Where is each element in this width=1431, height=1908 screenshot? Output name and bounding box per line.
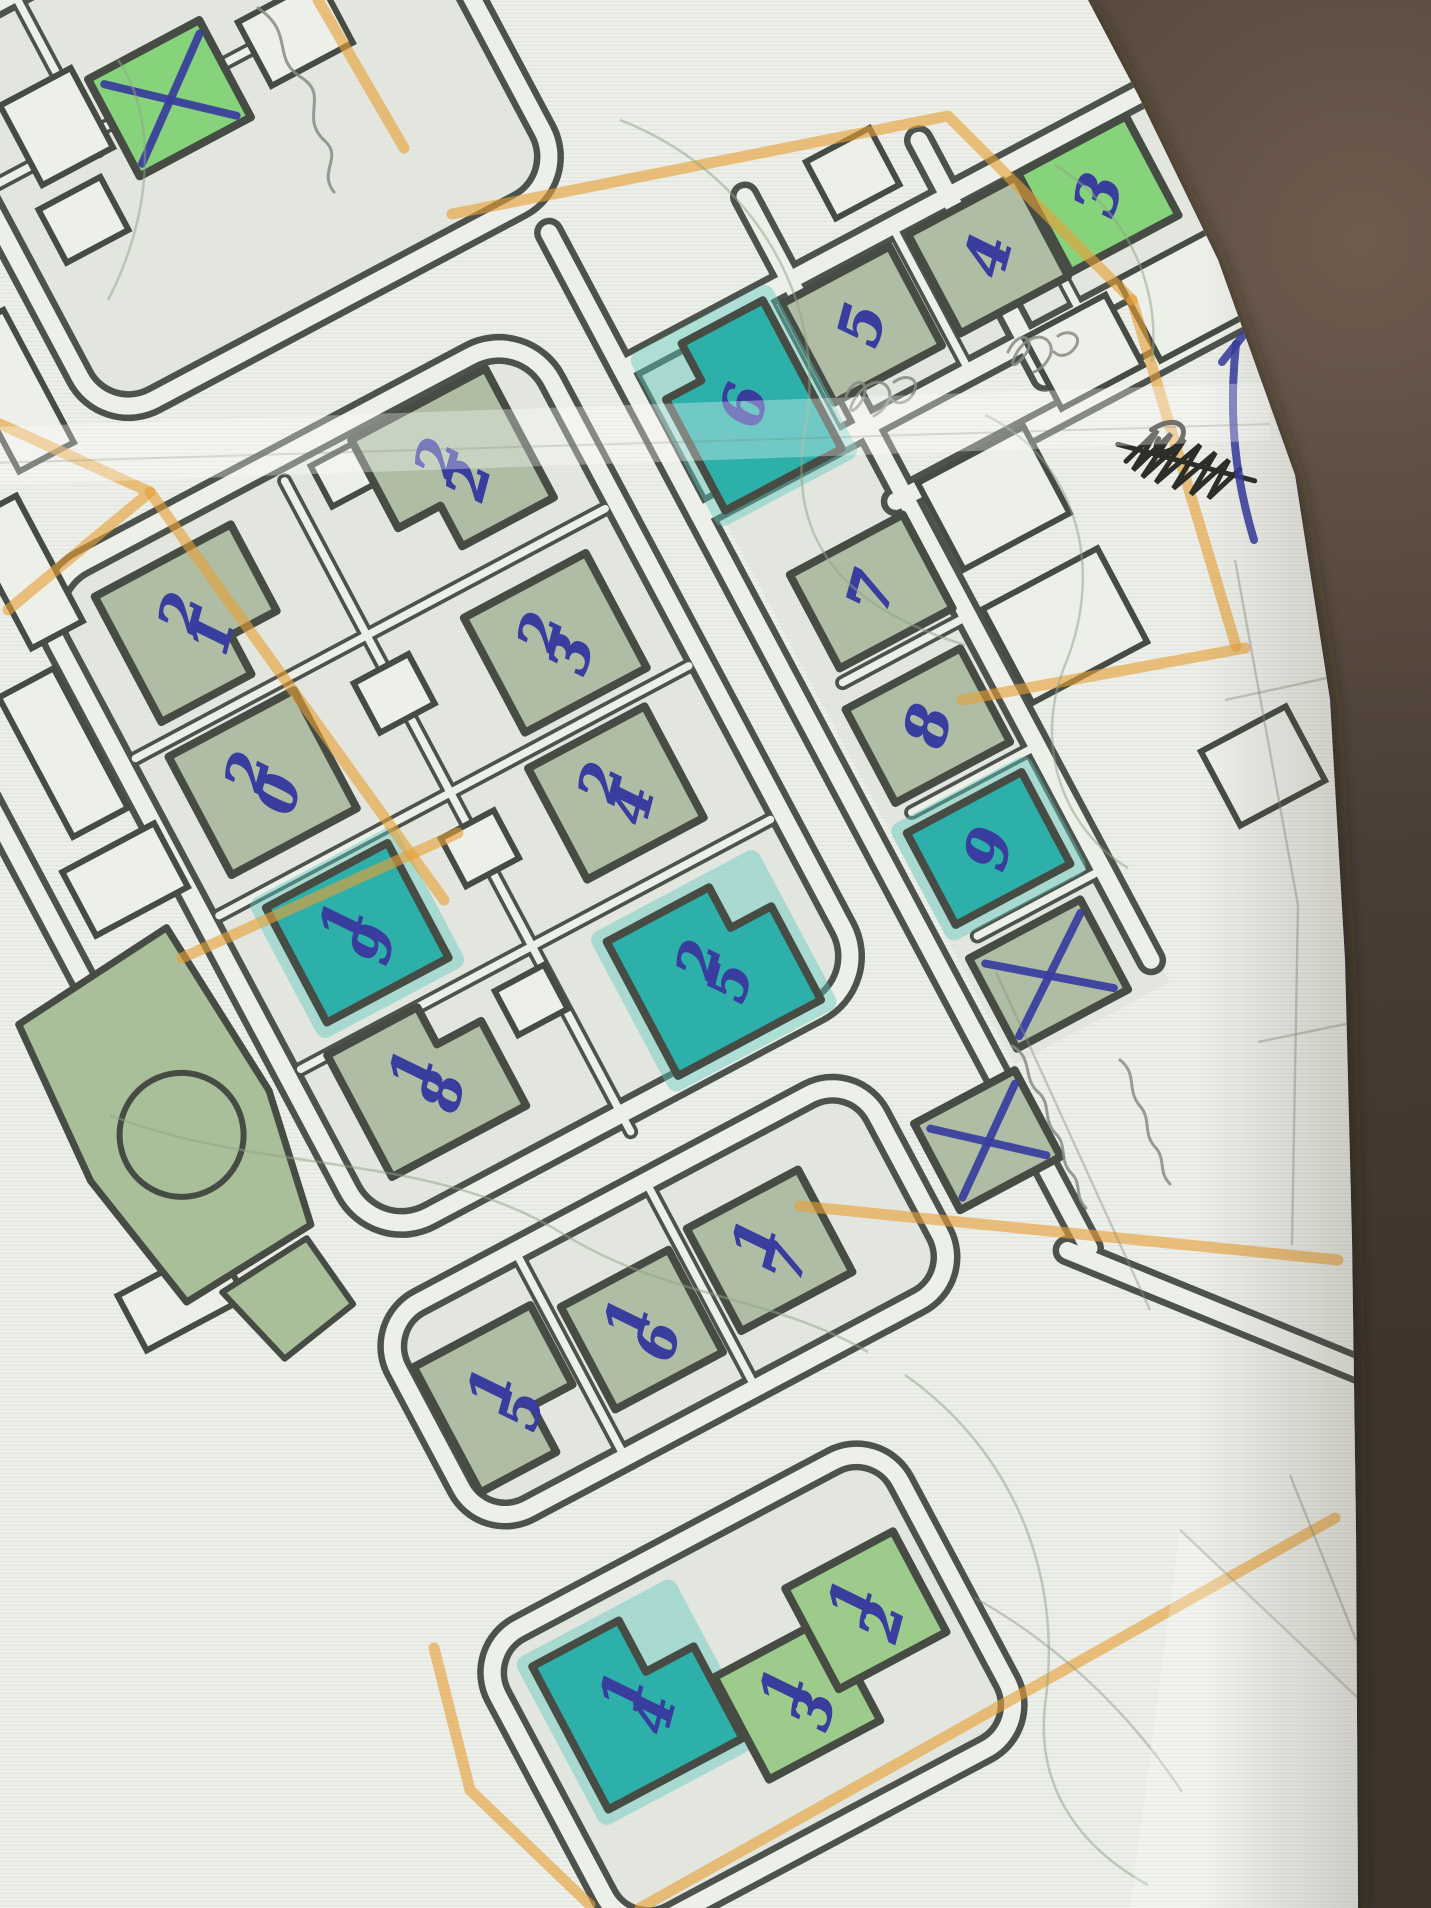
- photo-of-annotated-street-map: 34567892221232024192518171615141312: [0, 0, 1431, 1908]
- paper-content: 34567892221232024192518171615141312: [0, 0, 1431, 1908]
- map-photo: 34567892221232024192518171615141312: [0, 0, 1431, 1908]
